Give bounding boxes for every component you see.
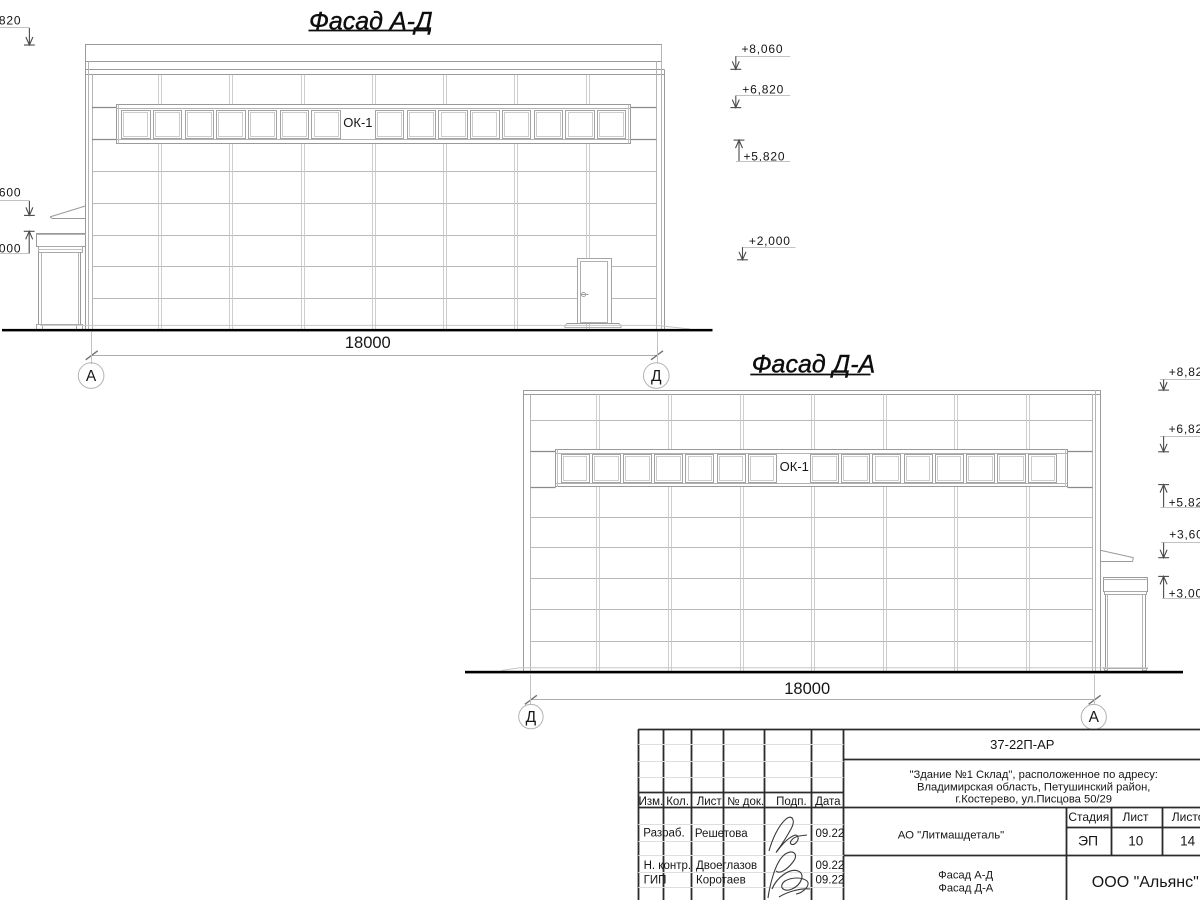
svg-text:+8,060: +8,060: [742, 42, 784, 56]
svg-text:ЭП: ЭП: [1078, 833, 1098, 849]
svg-text:Стадия: Стадия: [1068, 810, 1109, 824]
svg-text:Д: Д: [526, 709, 537, 726]
svg-text:Коротаев: Коротаев: [696, 875, 746, 887]
svg-text:Д: Д: [651, 368, 662, 385]
svg-text:+6,820: +6,820: [742, 83, 784, 97]
svg-text:+8,820: +8,820: [0, 13, 21, 27]
svg-text:Лист: Лист: [697, 796, 723, 808]
svg-text:ОК-1: ОК-1: [780, 459, 809, 474]
svg-text:Фасад Д-А: Фасад Д-А: [938, 882, 993, 894]
svg-text:+6,820: +6,820: [1169, 422, 1200, 436]
svg-text:Дата: Дата: [815, 796, 841, 808]
svg-text:18000: 18000: [345, 334, 391, 352]
svg-text:Изм.: Изм.: [639, 796, 664, 808]
svg-text:Двоеглазов: Двоеглазов: [696, 860, 757, 872]
svg-text:Фасад А-Д: Фасад А-Д: [938, 869, 993, 881]
svg-text:ООО "Альянс": ООО "Альянс": [1092, 874, 1199, 891]
svg-text:Лист: Лист: [1122, 810, 1149, 824]
svg-text:+8,820: +8,820: [1169, 365, 1200, 379]
svg-text:10: 10: [1128, 834, 1143, 849]
svg-text:09.22: 09.22: [816, 860, 845, 872]
svg-text:ОК-1: ОК-1: [343, 115, 372, 130]
svg-text:№ док.: № док.: [727, 796, 764, 808]
svg-text:14: 14: [1180, 834, 1196, 849]
svg-text:А: А: [1089, 709, 1100, 726]
svg-text:09.22: 09.22: [816, 828, 845, 840]
svg-text:Разраб.: Разраб.: [643, 828, 684, 840]
svg-text:Н. контр.: Н. контр.: [644, 860, 691, 872]
svg-text:Подп.: Подп.: [776, 796, 807, 808]
svg-text:+3,600: +3,600: [0, 185, 21, 199]
svg-text:Решетова: Решетова: [695, 828, 748, 840]
svg-text:г.Костерево, ул.Писцова 50/29: г.Костерево, ул.Писцова 50/29: [955, 794, 1112, 806]
svg-text:Владимирская область, Петушинс: Владимирская область, Петушинский район,: [917, 782, 1150, 794]
svg-text:09.22: 09.22: [816, 875, 845, 887]
svg-text:Листов: Листов: [1172, 810, 1200, 824]
svg-text:АО "Литмашдеталь": АО "Литмашдеталь": [898, 830, 1004, 842]
svg-text:+3,600: +3,600: [1169, 527, 1200, 541]
svg-text:Кол.: Кол.: [666, 796, 689, 808]
svg-text:37-22П-АР: 37-22П-АР: [990, 737, 1054, 752]
svg-text:ГИП: ГИП: [644, 875, 667, 887]
svg-text:"Здание №1 Склад", расположенн: "Здание №1 Склад", расположенное по адре…: [909, 769, 1157, 781]
svg-text:+2,000: +2,000: [749, 234, 791, 248]
svg-text:18000: 18000: [784, 680, 830, 698]
svg-text:А: А: [86, 368, 97, 385]
